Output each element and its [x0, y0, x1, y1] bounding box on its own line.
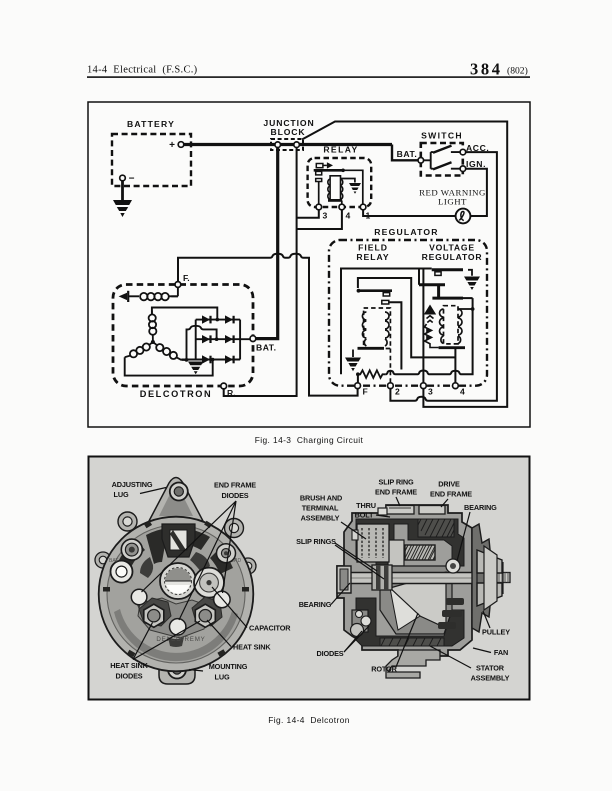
svg-text:STATOR: STATOR: [476, 664, 505, 673]
svg-text:THRU: THRU: [356, 501, 376, 510]
svg-text:LUG: LUG: [215, 673, 230, 682]
svg-text:−: −: [129, 174, 135, 185]
svg-text:(802): (802): [507, 66, 528, 77]
svg-text:ADJUSTING: ADJUSTING: [112, 480, 153, 489]
svg-text:RELAY: RELAY: [356, 252, 389, 262]
svg-text:TERMINAL: TERMINAL: [302, 504, 339, 513]
svg-text:ROTOR: ROTOR: [371, 665, 397, 674]
svg-text:FIELD: FIELD: [358, 243, 388, 253]
svg-text:BRUSH AND: BRUSH AND: [300, 494, 342, 503]
svg-text:14-4 Electrical (F.S.C.): 14-4 Electrical (F.S.C.): [87, 65, 198, 76]
svg-text:2: 2: [395, 387, 400, 397]
svg-text:BEARING: BEARING: [299, 600, 332, 609]
svg-text:FAN: FAN: [494, 648, 508, 657]
svg-text:4: 4: [346, 211, 351, 221]
svg-text:RELAY: RELAY: [323, 145, 358, 155]
svg-text:HEAT SINK: HEAT SINK: [110, 661, 148, 670]
svg-text:+: +: [169, 140, 175, 151]
svg-text:PULLEY: PULLEY: [482, 628, 510, 637]
svg-text:BLOCK: BLOCK: [270, 127, 305, 137]
svg-text:DRIVE: DRIVE: [438, 480, 460, 489]
svg-text:END FRAME: END FRAME: [214, 481, 256, 490]
svg-text:DIODES: DIODES: [316, 649, 343, 658]
svg-text:END FRAME: END FRAME: [430, 490, 472, 499]
svg-text:REGULATOR: REGULATOR: [374, 227, 438, 237]
svg-text:BOLT: BOLT: [355, 511, 374, 520]
svg-text:DELCOTRON: DELCOTRON: [140, 389, 213, 399]
svg-text:ASSEMBLY: ASSEMBLY: [471, 674, 510, 683]
svg-text:R.: R.: [227, 388, 236, 398]
svg-text:END FRAME: END FRAME: [375, 488, 417, 497]
svg-text:BAT.: BAT.: [397, 149, 418, 159]
svg-text:DIODES: DIODES: [115, 672, 142, 681]
svg-text:ASSEMBLY: ASSEMBLY: [301, 514, 340, 523]
svg-text:F: F: [363, 387, 368, 397]
svg-text:HEAT SINK: HEAT SINK: [233, 643, 271, 652]
svg-text:F.: F.: [183, 273, 190, 283]
svg-text:CAPACITOR: CAPACITOR: [249, 624, 291, 633]
svg-text:4: 4: [460, 387, 465, 397]
svg-text:LIGHT: LIGHT: [438, 197, 467, 207]
svg-text:DIODES: DIODES: [221, 491, 248, 500]
svg-text:Fig. 14-3 Charging Circuit: Fig. 14-3 Charging Circuit: [255, 435, 364, 445]
svg-text:BAT: BAT: [109, 558, 118, 564]
svg-text:Fig. 14-4 Delcotron: Fig. 14-4 Delcotron: [268, 715, 350, 725]
svg-text:384: 384: [470, 60, 503, 79]
svg-text:VOLTAGE: VOLTAGE: [429, 243, 475, 253]
svg-text:BEARING: BEARING: [464, 503, 497, 512]
svg-text:3: 3: [428, 387, 433, 397]
svg-text:BATTERY: BATTERY: [127, 119, 175, 129]
svg-text:REGULATOR: REGULATOR: [422, 252, 483, 262]
svg-text:3: 3: [323, 211, 328, 221]
svg-text:SLIP RINGS: SLIP RINGS: [296, 537, 336, 546]
svg-text:SWITCH: SWITCH: [421, 131, 463, 141]
svg-text:MOUNTING: MOUNTING: [209, 662, 248, 671]
svg-text:SLIP RING: SLIP RING: [378, 478, 413, 487]
svg-text:BAT.: BAT.: [256, 343, 276, 353]
svg-text:LUG: LUG: [114, 490, 129, 499]
